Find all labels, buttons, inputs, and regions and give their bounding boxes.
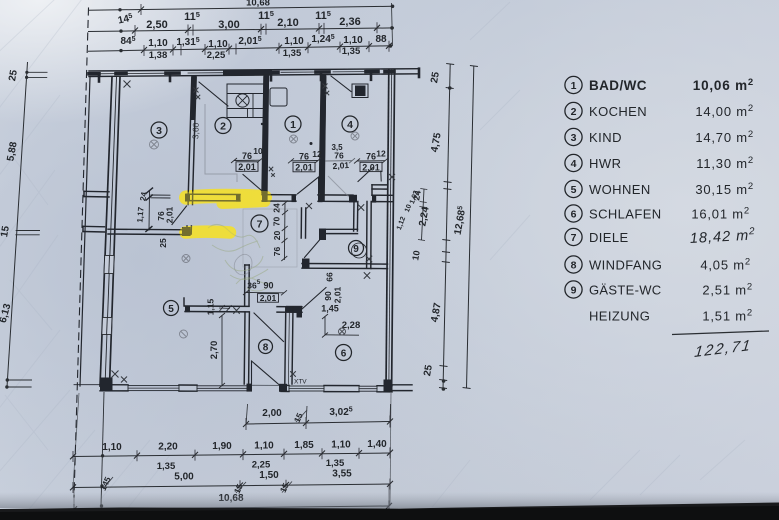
svg-text:4,75: 4,75 bbox=[429, 132, 443, 154]
svg-text:115: 115 bbox=[315, 9, 331, 22]
svg-text:1,15: 1,15 bbox=[206, 298, 216, 315]
svg-text:1,85: 1,85 bbox=[294, 440, 314, 451]
svg-text:76: 76 bbox=[299, 152, 309, 162]
svg-text:12: 12 bbox=[312, 149, 322, 159]
svg-text:1,10: 1,10 bbox=[331, 440, 351, 451]
svg-text:30,15 m2: 30,15 m2 bbox=[695, 181, 754, 197]
svg-text:5,88: 5,88 bbox=[5, 141, 19, 163]
svg-text:845: 845 bbox=[120, 36, 135, 47]
svg-text:20: 20 bbox=[272, 231, 282, 241]
svg-text:1,50: 1,50 bbox=[259, 470, 279, 481]
svg-text:2,10: 2,10 bbox=[277, 17, 298, 29]
svg-text:3,60: 3,60 bbox=[190, 122, 201, 139]
svg-text:2,01: 2,01 bbox=[165, 206, 175, 223]
svg-text:1,35: 1,35 bbox=[157, 461, 176, 472]
svg-text:6: 6 bbox=[341, 349, 347, 360]
svg-text:3: 3 bbox=[156, 125, 162, 137]
svg-text:1,10: 1,10 bbox=[102, 442, 122, 453]
svg-text:4,87: 4,87 bbox=[429, 302, 443, 324]
svg-text:1,315: 1,315 bbox=[176, 37, 199, 48]
svg-text:2,25: 2,25 bbox=[252, 460, 271, 471]
svg-text:9: 9 bbox=[353, 244, 359, 255]
svg-text:2: 2 bbox=[571, 106, 577, 118]
svg-text:1,45: 1,45 bbox=[321, 304, 339, 314]
svg-text:10,68: 10,68 bbox=[246, 0, 270, 9]
svg-text:8: 8 bbox=[263, 343, 269, 354]
svg-text:1,10: 1,10 bbox=[284, 36, 304, 47]
svg-text:3,025: 3,025 bbox=[329, 407, 352, 419]
svg-text:11,30 m2: 11,30 m2 bbox=[696, 155, 754, 171]
svg-text:12: 12 bbox=[376, 149, 386, 159]
svg-text:1,17: 1,17 bbox=[135, 206, 145, 223]
svg-text:1,10: 1,10 bbox=[208, 39, 228, 50]
svg-text:10: 10 bbox=[410, 250, 422, 262]
svg-text:KIND: KIND bbox=[589, 130, 622, 145]
svg-text:18,42 m2: 18,42 m2 bbox=[689, 226, 756, 247]
svg-text:1,90: 1,90 bbox=[212, 441, 232, 452]
svg-text:2,01: 2,01 bbox=[332, 160, 349, 171]
svg-text:2,36: 2,36 bbox=[339, 16, 360, 28]
svg-text:5: 5 bbox=[571, 184, 577, 196]
svg-text:HEIZUNG: HEIZUNG bbox=[589, 309, 650, 324]
svg-text:115: 115 bbox=[258, 9, 274, 22]
svg-text:25: 25 bbox=[422, 364, 435, 377]
svg-text:4: 4 bbox=[571, 158, 577, 170]
svg-text:SCHLAFEN: SCHLAFEN bbox=[589, 207, 662, 222]
svg-text:2: 2 bbox=[220, 121, 226, 133]
svg-text:15: 15 bbox=[0, 225, 12, 238]
svg-text:KOCHEN: KOCHEN bbox=[589, 104, 647, 119]
svg-text:25: 25 bbox=[429, 71, 442, 84]
svg-text:XTV: XTV bbox=[294, 379, 307, 386]
svg-text:6: 6 bbox=[571, 209, 577, 221]
svg-text:1: 1 bbox=[290, 119, 296, 131]
svg-text:25: 25 bbox=[158, 238, 168, 248]
svg-text:2,00: 2,00 bbox=[262, 408, 282, 419]
svg-text:3,55: 3,55 bbox=[332, 469, 352, 480]
svg-text:76: 76 bbox=[242, 151, 252, 161]
svg-text:1,10: 1,10 bbox=[148, 38, 168, 49]
svg-text:1,38: 1,38 bbox=[149, 50, 168, 61]
svg-text:10: 10 bbox=[253, 146, 263, 156]
svg-text:2,01: 2,01 bbox=[295, 162, 313, 172]
svg-text:76: 76 bbox=[272, 247, 282, 257]
svg-text:WOHNEN: WOHNEN bbox=[589, 182, 651, 197]
svg-text:1,245: 1,245 bbox=[311, 34, 334, 45]
svg-text:2,70: 2,70 bbox=[209, 341, 220, 360]
svg-text:1,10: 1,10 bbox=[343, 35, 363, 46]
svg-text:3,00: 3,00 bbox=[218, 19, 239, 31]
svg-text:1,35: 1,35 bbox=[326, 458, 345, 469]
svg-text:2,51 m2: 2,51 m2 bbox=[702, 282, 753, 298]
svg-text:2,01: 2,01 bbox=[333, 286, 343, 303]
svg-text:15: 15 bbox=[292, 411, 305, 424]
svg-text:36: 36 bbox=[247, 281, 257, 291]
svg-text:122,71: 122,71 bbox=[694, 337, 754, 361]
svg-text:GÄSTE-WC: GÄSTE-WC bbox=[589, 283, 661, 298]
svg-text:5: 5 bbox=[257, 280, 261, 286]
svg-text:7: 7 bbox=[257, 219, 263, 231]
svg-text:DIELE: DIELE bbox=[589, 230, 629, 245]
svg-text:25: 25 bbox=[7, 69, 20, 82]
svg-text:145: 145 bbox=[117, 13, 134, 27]
svg-text:4: 4 bbox=[347, 119, 353, 131]
svg-text:145: 145 bbox=[98, 475, 113, 492]
svg-text:16,01 m2: 16,01 m2 bbox=[691, 206, 750, 222]
svg-text:3: 3 bbox=[571, 132, 577, 144]
svg-text:WINDFANG: WINDFANG bbox=[589, 258, 662, 273]
svg-text:7: 7 bbox=[571, 232, 577, 244]
svg-text:10,06 m2: 10,06 m2 bbox=[693, 77, 754, 93]
svg-text:1,51 m2: 1,51 m2 bbox=[702, 308, 753, 324]
svg-text:24: 24 bbox=[272, 203, 282, 213]
svg-text:10: 10 bbox=[404, 204, 413, 214]
svg-text:5: 5 bbox=[168, 304, 174, 315]
svg-text:4,05 m2: 4,05 m2 bbox=[700, 257, 751, 273]
svg-text:14,00 m2: 14,00 m2 bbox=[695, 103, 754, 119]
svg-text:2,50: 2,50 bbox=[146, 19, 167, 31]
svg-text:1,12: 1,12 bbox=[396, 216, 407, 231]
svg-text:70: 70 bbox=[272, 217, 282, 227]
svg-text:115: 115 bbox=[184, 10, 200, 23]
svg-text:2,01: 2,01 bbox=[362, 162, 380, 172]
svg-text:90: 90 bbox=[263, 281, 273, 291]
svg-text:2,01: 2,01 bbox=[260, 293, 277, 303]
svg-text:14,70 m2: 14,70 m2 bbox=[695, 129, 754, 145]
svg-text:1: 1 bbox=[571, 80, 577, 92]
svg-text:76: 76 bbox=[334, 151, 344, 161]
svg-text:HWR: HWR bbox=[589, 156, 622, 171]
svg-text:2,20: 2,20 bbox=[158, 442, 178, 453]
svg-text:2,01: 2,01 bbox=[238, 162, 256, 172]
svg-text:66: 66 bbox=[325, 272, 335, 282]
svg-text:1,10: 1,10 bbox=[254, 441, 274, 452]
svg-text:9: 9 bbox=[571, 285, 577, 297]
svg-text:1,40: 1,40 bbox=[367, 439, 387, 450]
svg-text:1,35: 1,35 bbox=[342, 46, 361, 57]
svg-text:90: 90 bbox=[323, 291, 333, 301]
svg-text:88: 88 bbox=[375, 34, 387, 45]
svg-text:8: 8 bbox=[571, 260, 577, 272]
svg-text:2,015: 2,015 bbox=[238, 36, 261, 47]
svg-text:1,35: 1,35 bbox=[283, 48, 302, 59]
svg-text:2,25: 2,25 bbox=[207, 50, 226, 61]
svg-text:12,685: 12,685 bbox=[453, 205, 469, 236]
svg-text:BAD/WC: BAD/WC bbox=[589, 78, 647, 93]
svg-text:76: 76 bbox=[366, 152, 376, 162]
svg-text:5,00: 5,00 bbox=[174, 472, 194, 483]
svg-text:2,24: 2,24 bbox=[417, 206, 431, 228]
